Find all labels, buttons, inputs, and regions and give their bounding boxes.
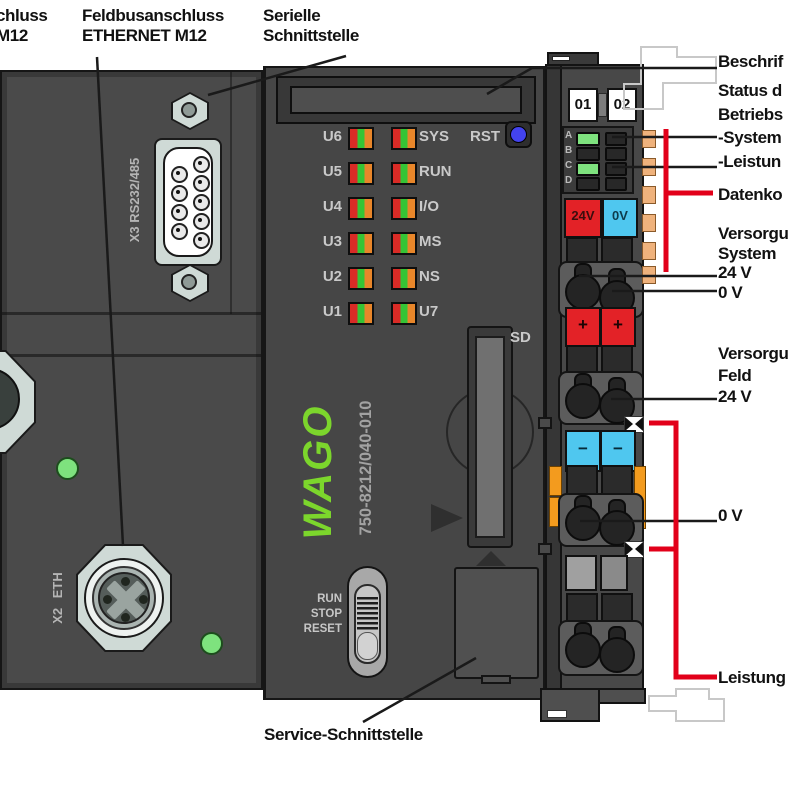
led-ms xyxy=(391,232,417,255)
ghost-outline-bottom xyxy=(649,689,724,721)
led-label-s: NS xyxy=(419,267,440,287)
module-led-b1 xyxy=(576,147,600,161)
eth-port-label: X2 ETH xyxy=(51,568,65,628)
led-label-u: U4 xyxy=(270,197,342,217)
reset-button xyxy=(510,126,527,143)
slot-number-text: 02 xyxy=(614,96,631,113)
dsub-pin xyxy=(171,204,188,221)
rst-label: RST xyxy=(470,127,500,147)
callout-data-contacts-red xyxy=(666,129,713,272)
clamp-opening xyxy=(565,632,601,668)
led-row: U5 RUN xyxy=(270,162,545,182)
service-flap-tab xyxy=(481,675,511,684)
dsub-pin xyxy=(193,213,210,230)
module-side-notch xyxy=(538,543,552,555)
din-rail-foot xyxy=(598,688,646,704)
data-contact xyxy=(642,158,656,176)
wago-logo: WAGO xyxy=(296,387,340,557)
dsub-pin xyxy=(193,194,210,211)
dsub-pin xyxy=(193,175,210,192)
clamp-opening xyxy=(565,274,601,310)
eth-m12-pin xyxy=(139,595,148,604)
led-u5 xyxy=(348,162,374,185)
module-led-a1-on xyxy=(576,132,600,146)
housing-seam-top xyxy=(2,312,261,315)
label-marking: Beschrif xyxy=(718,52,800,72)
mode-switch-ridges xyxy=(357,597,378,631)
din-rail-foot-mark xyxy=(547,710,567,718)
sd-card xyxy=(475,336,505,538)
callout-power-contacts-red xyxy=(649,423,717,677)
data-contact xyxy=(642,242,656,260)
module-led-c2 xyxy=(605,162,627,176)
led-label-s: SYS xyxy=(419,127,449,147)
slot-number-text: 01 xyxy=(575,96,592,113)
label-power-connector: chluss M12 xyxy=(0,6,47,45)
module-led-letter: A xyxy=(565,130,572,141)
dsub-screw-top-hole xyxy=(181,102,197,118)
button-gray xyxy=(600,555,628,591)
eth-m12-core xyxy=(98,572,150,624)
led-label-s: RUN xyxy=(419,162,452,182)
led-ns xyxy=(391,267,417,290)
led-label-s: I/O xyxy=(419,197,439,217)
button-0v: 0V xyxy=(602,198,638,238)
led-row: U6 SYS xyxy=(270,127,545,147)
housing-seam-vertical xyxy=(230,72,232,314)
led-sys xyxy=(391,127,417,150)
module-led-d1 xyxy=(576,177,600,191)
clamp-opening xyxy=(599,637,635,673)
eth-m12-pin xyxy=(121,577,130,586)
button-gray xyxy=(565,555,597,591)
data-contact xyxy=(642,186,656,204)
marking-strip-inner xyxy=(290,86,522,114)
led-u7 xyxy=(391,302,417,325)
housing-seam-bottom xyxy=(2,354,261,357)
orange-latch xyxy=(549,466,562,496)
led-label-u: U3 xyxy=(270,232,342,252)
dsub-pin xyxy=(193,232,210,249)
module-led-letter: D xyxy=(565,175,572,186)
dsub-port-label: X3 RS232/485 xyxy=(128,155,142,245)
led-run xyxy=(391,162,417,185)
led-label-u: U1 xyxy=(270,302,342,322)
button-plus: + xyxy=(600,307,636,347)
dsub-pin xyxy=(171,166,188,183)
clamp-opening xyxy=(565,383,601,419)
module-led-a2 xyxy=(605,132,627,146)
led-io xyxy=(391,197,417,220)
mode-switch-label: RUN STOP RESET xyxy=(296,592,342,637)
dsub-pin xyxy=(193,156,210,173)
service-flap xyxy=(454,567,539,679)
status-led-green xyxy=(200,632,223,655)
module-led-letter: B xyxy=(565,145,572,156)
led-row: U4 I/O xyxy=(270,197,545,217)
label-fieldbus-connector: Feldbusanschluss ETHERNET M12 xyxy=(82,6,224,45)
data-contact xyxy=(642,214,656,232)
module-side-notch xyxy=(538,417,552,429)
eth-m12-pin xyxy=(103,595,112,604)
mode-switch-knob xyxy=(357,632,378,660)
part-number: 750-8212/040-010 xyxy=(357,383,375,553)
module-top-tab-mark xyxy=(552,56,570,61)
label-data-contacts: Datenko xyxy=(718,185,800,205)
led-u1 xyxy=(348,302,374,325)
led-u3 xyxy=(348,232,374,255)
label-serial-interface: Serielle Schnittstelle xyxy=(263,6,359,45)
led-label-s: MS xyxy=(419,232,442,252)
data-contact xyxy=(642,266,656,284)
led-u6 xyxy=(348,127,374,150)
label-0v-field: 0 V xyxy=(718,506,800,526)
module-led-c1-on xyxy=(576,162,600,176)
dsub-pin xyxy=(171,223,188,240)
led-label-u: U2 xyxy=(270,267,342,287)
sd-insert-arrow-icon xyxy=(431,504,463,532)
sd-eject-arrow-icon xyxy=(476,551,506,566)
led-label-u: U6 xyxy=(270,127,342,147)
led-row: U1 U7 xyxy=(270,302,545,322)
module-led-d2 xyxy=(605,177,627,191)
sd-label: SD xyxy=(510,329,531,346)
status-led-green xyxy=(56,457,79,480)
module-led-letter: C xyxy=(565,160,572,171)
led-u2 xyxy=(348,267,374,290)
dsub-pin xyxy=(171,185,188,202)
slot-number-01: 01 xyxy=(568,88,598,122)
label-service-interface: Service-Schnittstelle xyxy=(264,725,423,745)
led-label-s: U7 xyxy=(419,302,438,322)
label-status-voltage: Status d Betriebs -System -Leistun xyxy=(718,79,800,173)
eth-m12-pin xyxy=(121,613,130,622)
button-plus: + xyxy=(565,307,601,347)
slot-number-02: 02 xyxy=(607,88,637,122)
wire-slot xyxy=(601,593,633,623)
led-label-u: U5 xyxy=(270,162,342,182)
diagram-canvas: X3 RS232/485 X2 ETH U6 SYS U5 RUN U4 I/O xyxy=(0,0,800,800)
slot-connector xyxy=(598,93,607,117)
led-u4 xyxy=(348,197,374,220)
data-contact xyxy=(642,130,656,148)
clamp-opening xyxy=(565,505,601,541)
label-power-contacts: Leistung xyxy=(718,668,800,688)
button-24v: 24V xyxy=(564,198,602,238)
led-row: U3 MS xyxy=(270,232,545,252)
led-row: U2 NS xyxy=(270,267,545,287)
wire-slot xyxy=(566,593,598,623)
dsub-screw-bottom-hole xyxy=(181,274,197,290)
label-supply-field: Versorgu Feld 24 V xyxy=(718,343,800,408)
label-supply-system: Versorgu System 24 V 0 V xyxy=(718,224,800,302)
module-led-b2 xyxy=(605,147,627,161)
